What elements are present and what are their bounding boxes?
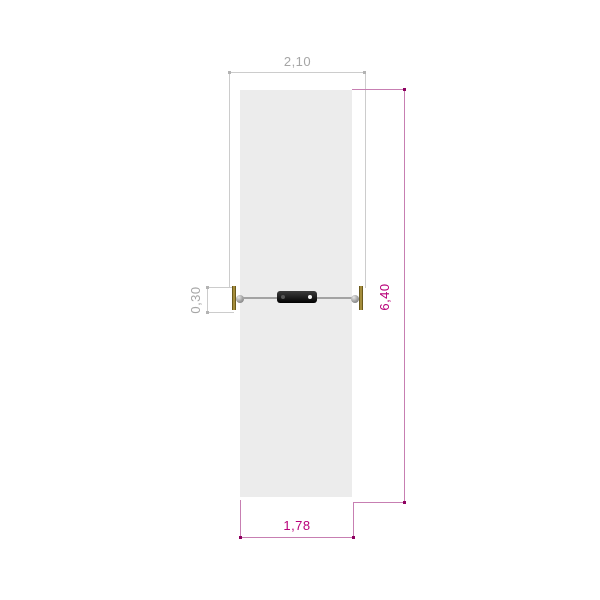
dim-left-marker-top — [206, 286, 209, 289]
dim-right-marker-bottom — [403, 501, 406, 504]
dim-right-line — [404, 89, 405, 503]
dim-top-ext-left — [229, 72, 230, 288]
dim-right-ext-top — [352, 89, 405, 90]
dim-left-marker-bottom — [206, 311, 209, 314]
dim-right-ext-bottom — [353, 502, 405, 503]
dim-top-line — [229, 72, 366, 73]
dim-left-label: 0,30 — [188, 280, 204, 320]
dim-bottom-line — [240, 537, 354, 538]
center-plate — [277, 291, 317, 303]
dim-top-marker-left — [228, 71, 231, 74]
cable-right-segment — [317, 297, 353, 299]
plate-hole-left — [281, 295, 285, 299]
cable-left-segment — [243, 297, 278, 299]
technical-drawing-canvas: 2,10 0,30 6,40 1,78 — [0, 0, 600, 600]
dim-top-ext-right — [365, 72, 366, 288]
anchor-sphere-right — [351, 295, 359, 303]
dim-bottom-marker-left — [239, 536, 242, 539]
dim-top-marker-right — [363, 71, 366, 74]
dim-right-label: 6,40 — [377, 277, 393, 317]
dim-right-marker-top — [403, 88, 406, 91]
plate-hole-right — [308, 295, 312, 299]
dim-bottom-label: 1,78 — [240, 518, 354, 534]
dim-top-label: 2,10 — [229, 54, 366, 70]
dim-left-ext-bottom — [207, 312, 234, 313]
dim-left-ext-top — [207, 287, 234, 288]
dim-left-line — [207, 287, 208, 313]
anchor-post-right — [359, 286, 363, 310]
dim-bottom-marker-right — [352, 536, 355, 539]
